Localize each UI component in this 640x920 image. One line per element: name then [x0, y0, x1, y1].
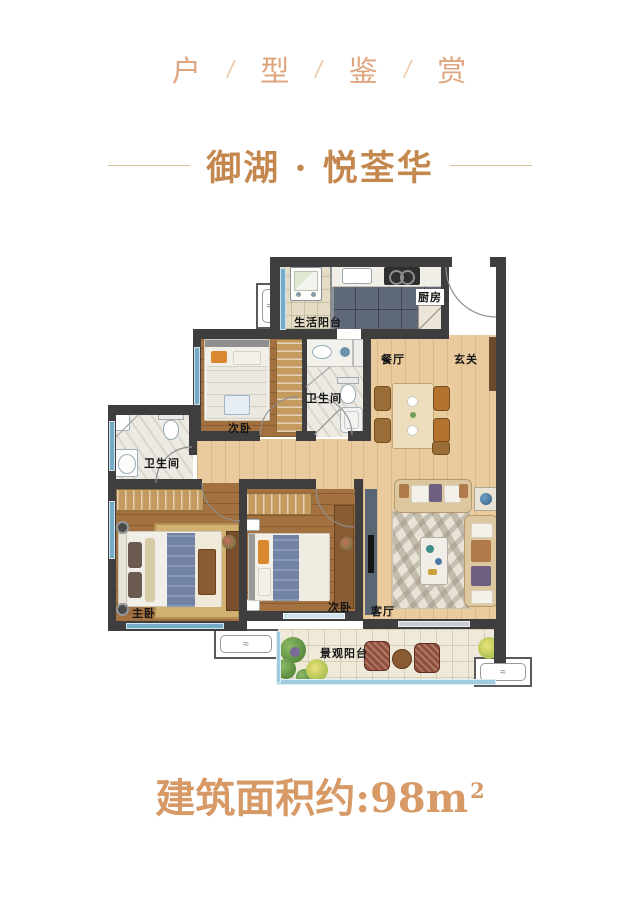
building-area-text: 建筑面积约:98m: [155, 775, 468, 822]
room-label-living: 客厅: [371, 603, 395, 619]
room-label-bathroom-main: 卫生间: [306, 390, 342, 406]
room-label-foyer: 玄关: [454, 351, 478, 367]
room-label-kitchen: 厨房: [416, 289, 444, 305]
room-label-bedroom-lower: 次卧: [328, 599, 352, 615]
project-title: 御湖 · 悦荃华: [206, 140, 434, 191]
floor-plan: ≈ ≈ ≈: [100, 253, 540, 693]
slash-separator: /: [314, 57, 327, 82]
room-label-dining: 餐厅: [381, 351, 405, 367]
room-label-bedroom-master: 主卧: [132, 605, 156, 621]
kicker-char: 鉴: [349, 48, 380, 90]
project-title-row: 御湖 · 悦荃华: [0, 140, 640, 191]
square-superscript: 2: [470, 778, 485, 803]
slash-separator: /: [225, 57, 238, 82]
page-kicker: 户 / 型 / 鉴 / 赏: [0, 48, 640, 90]
title-divider-line: [450, 165, 532, 166]
room-label-view-balcony: 景观阳台: [320, 645, 368, 661]
room-label-bedroom-upper: 次卧: [228, 420, 252, 436]
kicker-char: 型: [260, 48, 291, 90]
room-label-bathroom-second: 卫生间: [144, 455, 180, 471]
title-divider-line: [108, 165, 190, 166]
kicker-char: 户: [172, 48, 203, 90]
room-label-service-balcony: 生活阳台: [294, 314, 342, 330]
building-area: 建筑面积约:98m2: [0, 766, 640, 824]
kicker-char: 赏: [437, 48, 468, 90]
slash-separator: /: [402, 57, 415, 82]
